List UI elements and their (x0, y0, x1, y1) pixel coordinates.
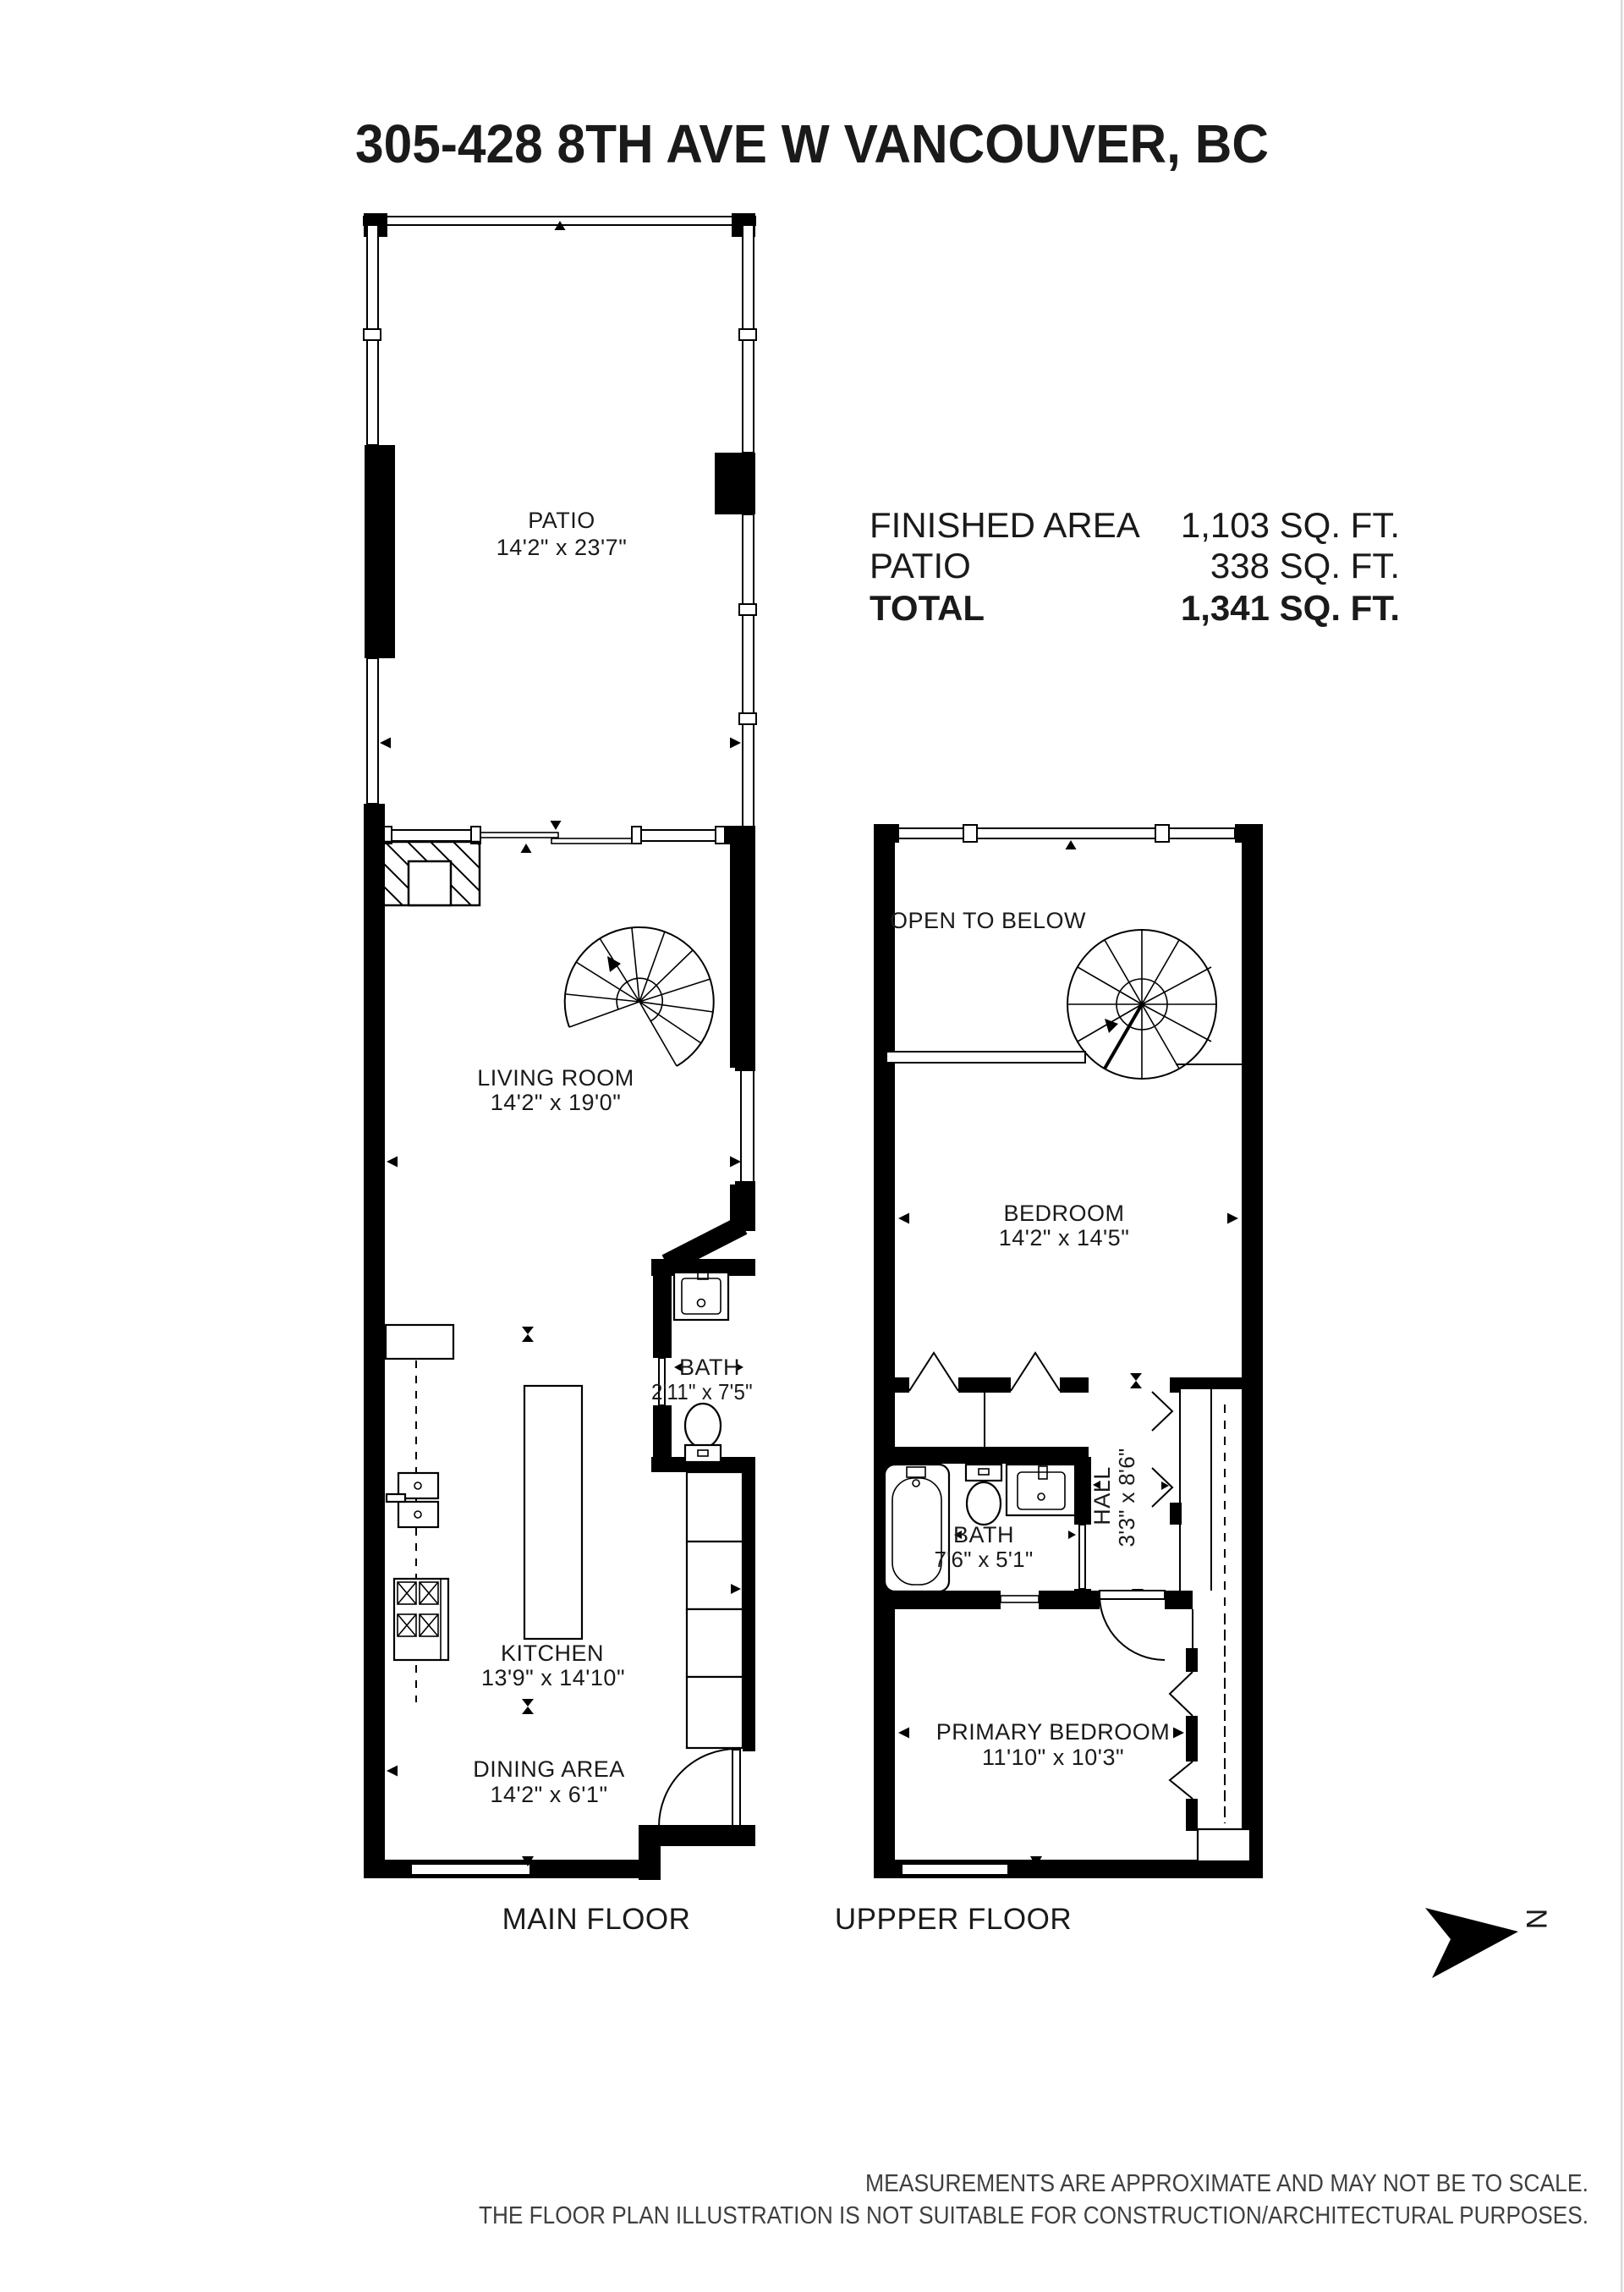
kitchen-label: KITCHEN (501, 1641, 604, 1666)
upper-floor-plan: OPEN TO BELOW BEDROOM 14'2" x 14'5" BATH… (874, 824, 1263, 1878)
image-edge-artifact (1621, 0, 1623, 2292)
page-title: 305-428 8TH AVE W VANCOUVER, BC (355, 113, 1269, 174)
primary-closet (1170, 1609, 1250, 1861)
spiral-staircase-icon (565, 927, 714, 1066)
living-room-label: LIVING ROOM (477, 1065, 634, 1091)
kitchen-island (524, 1386, 582, 1639)
upper-floor-label: UPPPER FLOOR (835, 1903, 1072, 1936)
bedroom-dims: 14'2" x 14'5" (999, 1225, 1130, 1250)
summary-value-patio: 338 SQ. FT. (1210, 546, 1400, 585)
area-summary: FINISHED AREA 1,103 SQ. FT. PATIO 338 SQ… (870, 505, 1400, 628)
toilet-icon (685, 1404, 721, 1462)
summary-label-patio: PATIO (870, 546, 971, 585)
open-to-below-label: OPEN TO BELOW (890, 908, 1086, 933)
summary-value-finished-area: 1,103 SQ. FT. (1181, 505, 1400, 545)
hall-dims: 3'3" x 8'6" (1114, 1448, 1139, 1547)
main-floor-plan: PATIO 14'2" x 23'7" LIVING ROOM 14'2" x … (364, 213, 756, 1880)
north-arrow-icon: N (1425, 1908, 1552, 1978)
main-floor-label: MAIN FLOOR (502, 1903, 691, 1936)
primary-bedroom-dims: 11'10" x 10'3" (982, 1745, 1124, 1770)
kitchen-dims: 13'9" x 14'10" (481, 1665, 625, 1690)
living-room-dims: 14'2" x 19'0" (491, 1090, 622, 1115)
upper-bath-label: BATH (953, 1522, 1014, 1547)
vanity-sink-icon (1007, 1465, 1078, 1515)
tall-cabinets (687, 1472, 743, 1748)
main-bath-label: BATH (679, 1355, 740, 1380)
stove-icon (394, 1579, 448, 1660)
upper-bath-dims: 7'6" x 5'1" (935, 1547, 1034, 1572)
patio-label: PATIO (528, 508, 595, 533)
sink-icon (674, 1267, 728, 1320)
summary-label-total: TOTAL (870, 588, 985, 628)
dining-area-label: DINING AREA (473, 1756, 625, 1782)
floor-plan-image: 305-428 8TH AVE W VANCOUVER, BC FINISHED… (0, 0, 1624, 2292)
dining-area-dims: 14'2" x 6'1" (490, 1782, 607, 1807)
hall-label: HALL (1089, 1466, 1115, 1525)
primary-bedroom-label: PRIMARY BEDROOM (936, 1719, 1171, 1745)
north-label: N (1520, 1909, 1552, 1930)
patio-dims: 14'2" x 23'7" (497, 535, 628, 560)
floor-plan-page: 305-428 8TH AVE W VANCOUVER, BC FINISHED… (0, 0, 1624, 2292)
spiral-staircase-icon-upper (1067, 930, 1216, 1079)
summary-label-finished-area: FINISHED AREA (870, 505, 1140, 545)
disclaimer-line-1: MEASUREMENTS ARE APPROXIMATE AND MAY NOT… (865, 2170, 1588, 2197)
fridge-cabinet (386, 1325, 453, 1359)
disclaimer-line-2: THE FLOOR PLAN ILLUSTRATION IS NOT SUITA… (479, 2202, 1588, 2229)
primary-bedroom-door (1100, 1591, 1165, 1660)
entry-door (659, 1749, 740, 1827)
main-bath-dims: 2'11" x 7'5" (651, 1379, 753, 1404)
summary-value-total: 1,341 SQ. FT. (1181, 588, 1400, 628)
kitchen-sink-icon (387, 1473, 438, 1527)
bedroom-label: BEDROOM (1003, 1201, 1124, 1226)
toilet-icon-upper (966, 1465, 1001, 1525)
bathtub-icon (885, 1465, 949, 1591)
hatched-block (382, 842, 480, 905)
